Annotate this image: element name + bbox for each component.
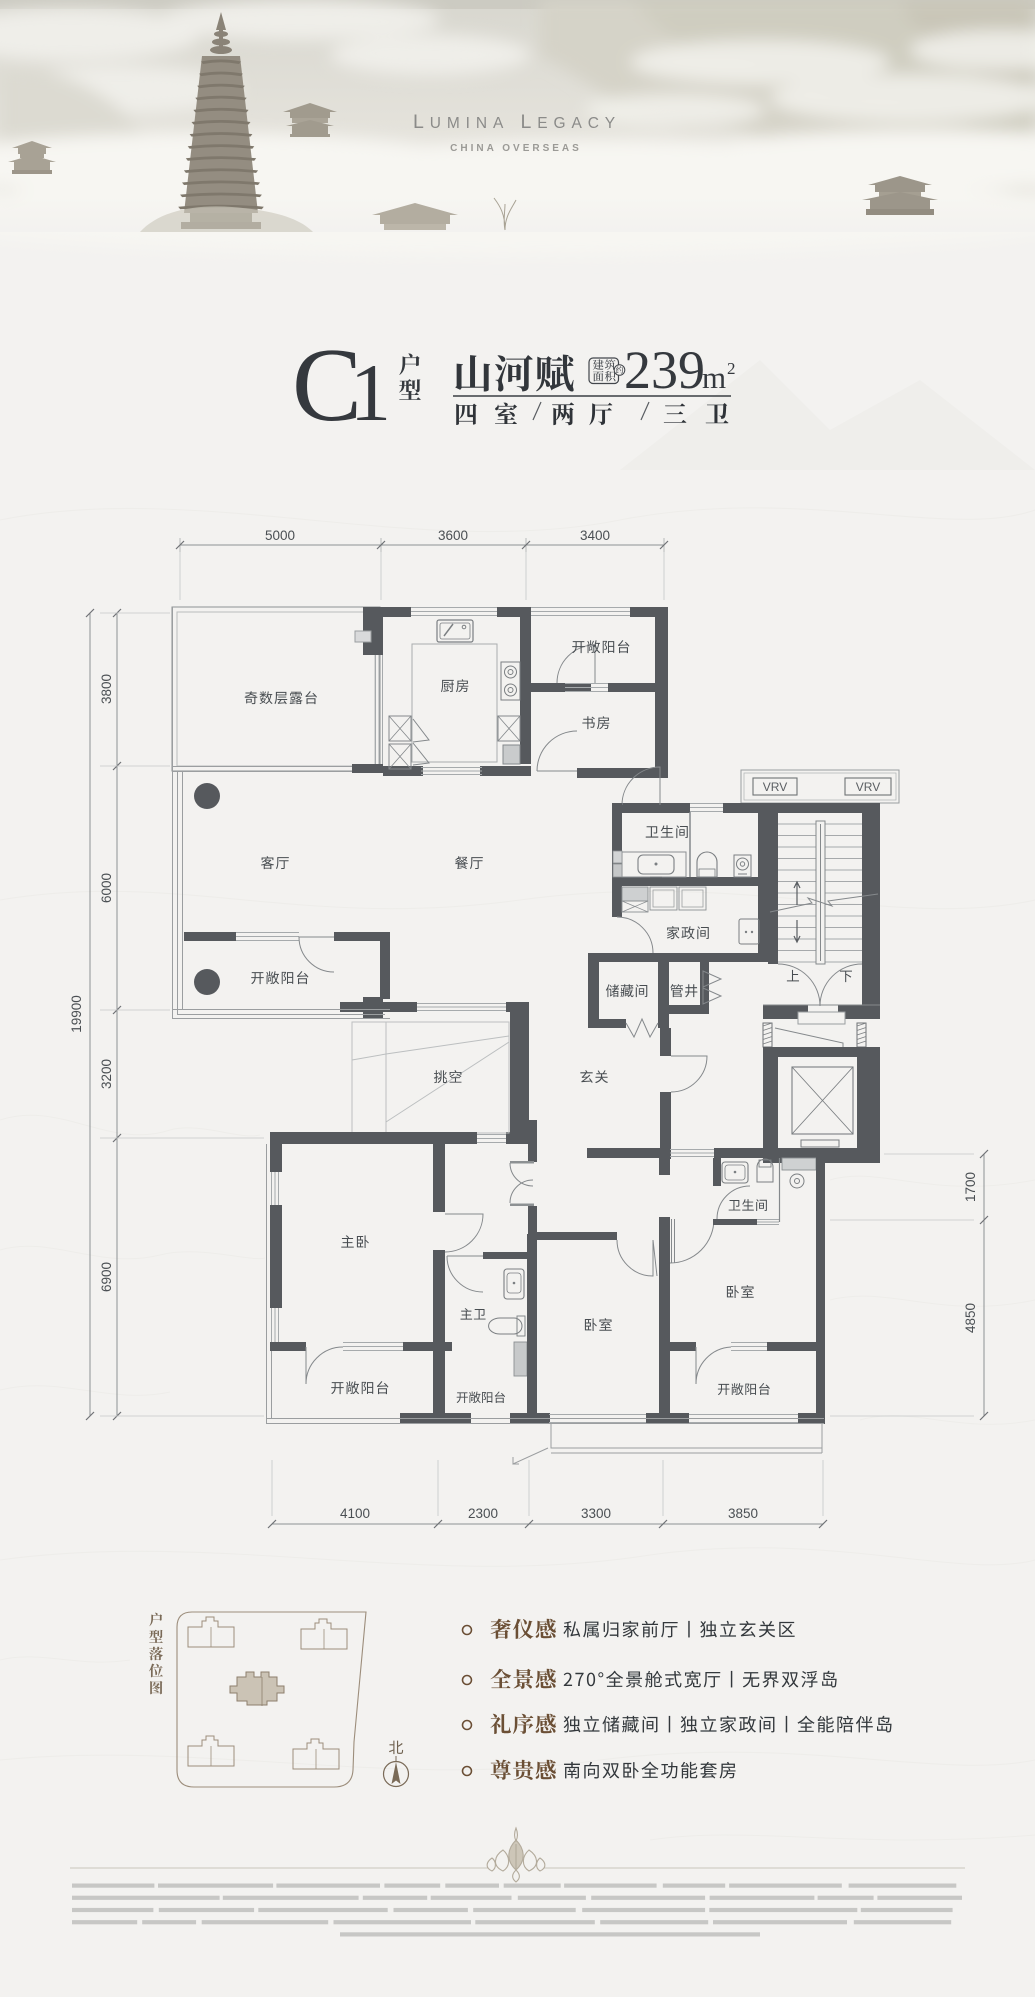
svg-text:1: 1: [350, 347, 391, 438]
svg-text:3400: 3400: [580, 528, 610, 543]
svg-text:3850: 3850: [728, 1506, 758, 1521]
svg-text:2300: 2300: [468, 1506, 498, 1521]
svg-text:m: m: [702, 360, 726, 395]
svg-text:6900: 6900: [99, 1262, 114, 1292]
svg-text:1700: 1700: [963, 1172, 978, 1202]
svg-text:3200: 3200: [99, 1059, 114, 1089]
svg-text:CHINA OVERSEAS: CHINA OVERSEAS: [450, 143, 582, 154]
svg-text:LUMINA LEGACY: LUMINA LEGACY: [413, 111, 621, 133]
svg-text:VRV: VRV: [856, 780, 880, 794]
svg-text:239: 239: [624, 340, 705, 400]
svg-text:19900: 19900: [69, 995, 84, 1033]
svg-text:3800: 3800: [99, 674, 114, 704]
svg-text:2: 2: [727, 359, 736, 378]
svg-text:5000: 5000: [265, 528, 295, 543]
svg-text:3600: 3600: [438, 528, 468, 543]
svg-text:6000: 6000: [99, 873, 114, 903]
svg-text:4850: 4850: [963, 1303, 978, 1333]
svg-text:3300: 3300: [581, 1506, 611, 1521]
svg-text:4100: 4100: [340, 1506, 370, 1521]
svg-text:VRV: VRV: [763, 780, 787, 794]
